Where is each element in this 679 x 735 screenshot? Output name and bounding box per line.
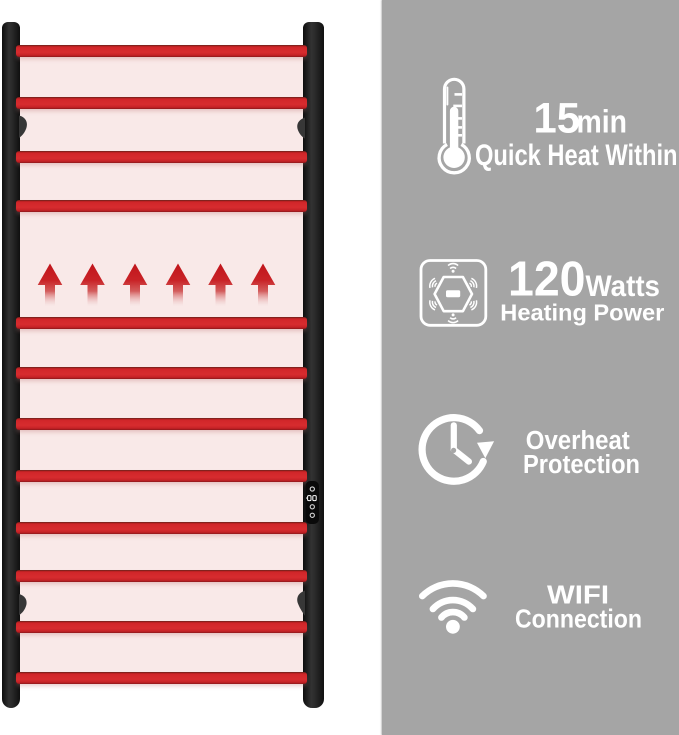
svg-text:Quick Heat Within: Quick Heat Within [475,139,678,172]
svg-text:120: 120 [508,252,586,307]
svg-text:Heating Power: Heating Power [500,300,664,326]
svg-text:Watts: Watts [586,270,661,303]
svg-text:Protection: Protection [523,451,640,479]
svg-text:15: 15 [534,95,581,143]
svg-text:min: min [577,104,628,140]
svg-text:Connection: Connection [515,604,642,634]
